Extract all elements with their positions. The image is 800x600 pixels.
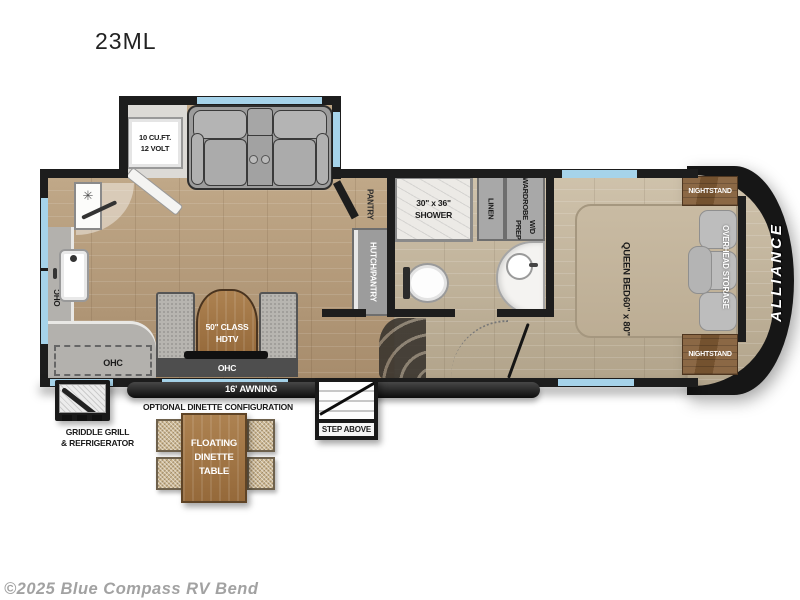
- burner-icon: ✳: [76, 184, 100, 208]
- wardrobe-label-line2: W/D PREP: [511, 220, 539, 240]
- refrigerator: 10 CU.FT. 12 VOLT: [127, 117, 183, 169]
- dinette-chair-bottom-left: [156, 457, 184, 490]
- dinette-chair-top-right: [247, 419, 275, 452]
- vanity-faucet: [529, 263, 538, 267]
- overhead-storage-label: OVERHEAD STORAGE: [718, 214, 733, 320]
- toilet: [406, 263, 449, 303]
- floating-table-line3: TABLE: [199, 465, 229, 479]
- wall-slide-left: [119, 96, 128, 178]
- fridge-label-line1: 10 CU.FT.: [139, 132, 171, 143]
- linen-cabinet: LINEN: [477, 176, 505, 241]
- fridge-label-line2: 12 VOLT: [141, 143, 169, 154]
- booth-base-cabinet: OHC: [156, 358, 298, 377]
- optional-dinette-heading: OPTIONAL DINETTE CONFIGURATION: [143, 401, 293, 413]
- step-above-diagonal: [319, 382, 374, 416]
- window-left-upper: [41, 198, 48, 268]
- wall-hutch-bottom: [322, 309, 366, 317]
- tv-label-line2: HDTV: [216, 333, 238, 345]
- wardrobe-label-line1: WARDROBE: [518, 177, 532, 220]
- step-above-label-bar: STEP ABOVE: [319, 423, 374, 436]
- bed-center-cushion: [688, 246, 712, 294]
- kitchen-ohc-bottom-label: OHC: [96, 356, 130, 370]
- theater-seat-left: [204, 139, 247, 186]
- cupholder-left: [249, 155, 258, 164]
- linen-label: LINEN: [479, 178, 503, 239]
- awning-label: 16' AWNING: [225, 384, 277, 395]
- shower: 30" x 36" SHOWER: [394, 176, 473, 242]
- theater-armrest-left: [191, 133, 204, 185]
- brand-name-text: ALLIANCE: [768, 222, 785, 322]
- shower-label-line1: 30" x 36": [416, 197, 451, 209]
- wall-bath-bottom-right: [497, 309, 554, 317]
- step-above-label: STEP ABOVE: [322, 425, 371, 434]
- theater-seating: [187, 105, 333, 190]
- wall-top-left: [40, 169, 128, 178]
- griddle-foot-left: [62, 415, 72, 421]
- shower-label-line2: SHOWER: [415, 209, 452, 221]
- pantry-label: PANTRY: [362, 183, 378, 225]
- theater-seat-right: [273, 139, 316, 186]
- tv-panel: 50" CLASS HDTV: [196, 289, 258, 359]
- wardrobe-cabinet: WARDROBE W/D PREP: [505, 176, 545, 241]
- kitchen-faucet: [70, 255, 77, 262]
- floating-table-line1: FLOATING: [191, 437, 237, 451]
- queen-bed-label-line2: 60" x 80": [618, 297, 635, 336]
- griddle-grill-surface: [59, 384, 106, 413]
- booth-ohc-label: OHC: [156, 358, 298, 377]
- nightstand-top-label: NIGHTSTAND: [683, 177, 737, 205]
- toilet-tank: [403, 267, 410, 299]
- floorplan-page: 23ML ALLIANCE QUEEN BED 60" x 80" OVERHE…: [0, 0, 800, 600]
- kitchen-faucet-handle: [53, 268, 57, 279]
- tv-label-line1: 50" CLASS: [206, 321, 249, 333]
- floorplan-title: 23ML: [95, 28, 157, 55]
- wall-bath-bottom-left: [387, 309, 455, 317]
- griddle-label: GRIDDLE GRILL & REFRIGERATOR: [30, 426, 165, 450]
- step-above-box: STEP ABOVE: [315, 378, 378, 440]
- wall-bath-right: [546, 173, 554, 317]
- griddle-grill-box: [55, 380, 110, 421]
- window-slideout-right: [333, 112, 340, 167]
- tv-screen-bar: [184, 351, 268, 359]
- nightstand-bottom-label: NIGHTSTAND: [683, 335, 737, 374]
- wall-bath-left: [387, 173, 395, 317]
- brand-name: ALLIANCE: [768, 208, 784, 336]
- queen-bed-label: QUEEN BED 60" x 80": [606, 236, 646, 342]
- dinette-chair-bottom-right: [247, 457, 275, 490]
- copyright-watermark: ©2025 Blue Compass RV Bend: [4, 580, 258, 599]
- window-bedroom-top: [562, 170, 637, 178]
- dinette-chair-top-left: [156, 419, 184, 452]
- window-bedroom-bottom: [558, 379, 634, 386]
- nightstand-bottom: NIGHTSTAND: [682, 334, 738, 375]
- griddle-label-line1: GRIDDLE GRILL: [66, 427, 130, 438]
- floating-table-line2: DINETTE: [194, 451, 233, 465]
- griddle-handle: [61, 387, 99, 413]
- theater-console-top: [247, 108, 273, 137]
- cupholder-right: [261, 155, 270, 164]
- floating-dinette-table: FLOATING DINETTE TABLE: [181, 413, 247, 503]
- griddle-foot-middle: [77, 415, 87, 421]
- nightstand-top: NIGHTSTAND: [682, 176, 738, 206]
- stove: ✳: [74, 182, 102, 230]
- griddle-label-line2: & REFRIGERATOR: [61, 438, 134, 449]
- window-slideout-top: [197, 97, 322, 104]
- interior-steps: [379, 318, 426, 378]
- step-above-steps: [319, 382, 374, 419]
- theater-armrest-right: [316, 133, 329, 185]
- queen-bed-label-line1: QUEEN BED: [618, 242, 635, 297]
- bed-head-wall: [737, 196, 746, 342]
- window-left-lower: [41, 271, 48, 344]
- griddle-foot-right: [92, 415, 102, 421]
